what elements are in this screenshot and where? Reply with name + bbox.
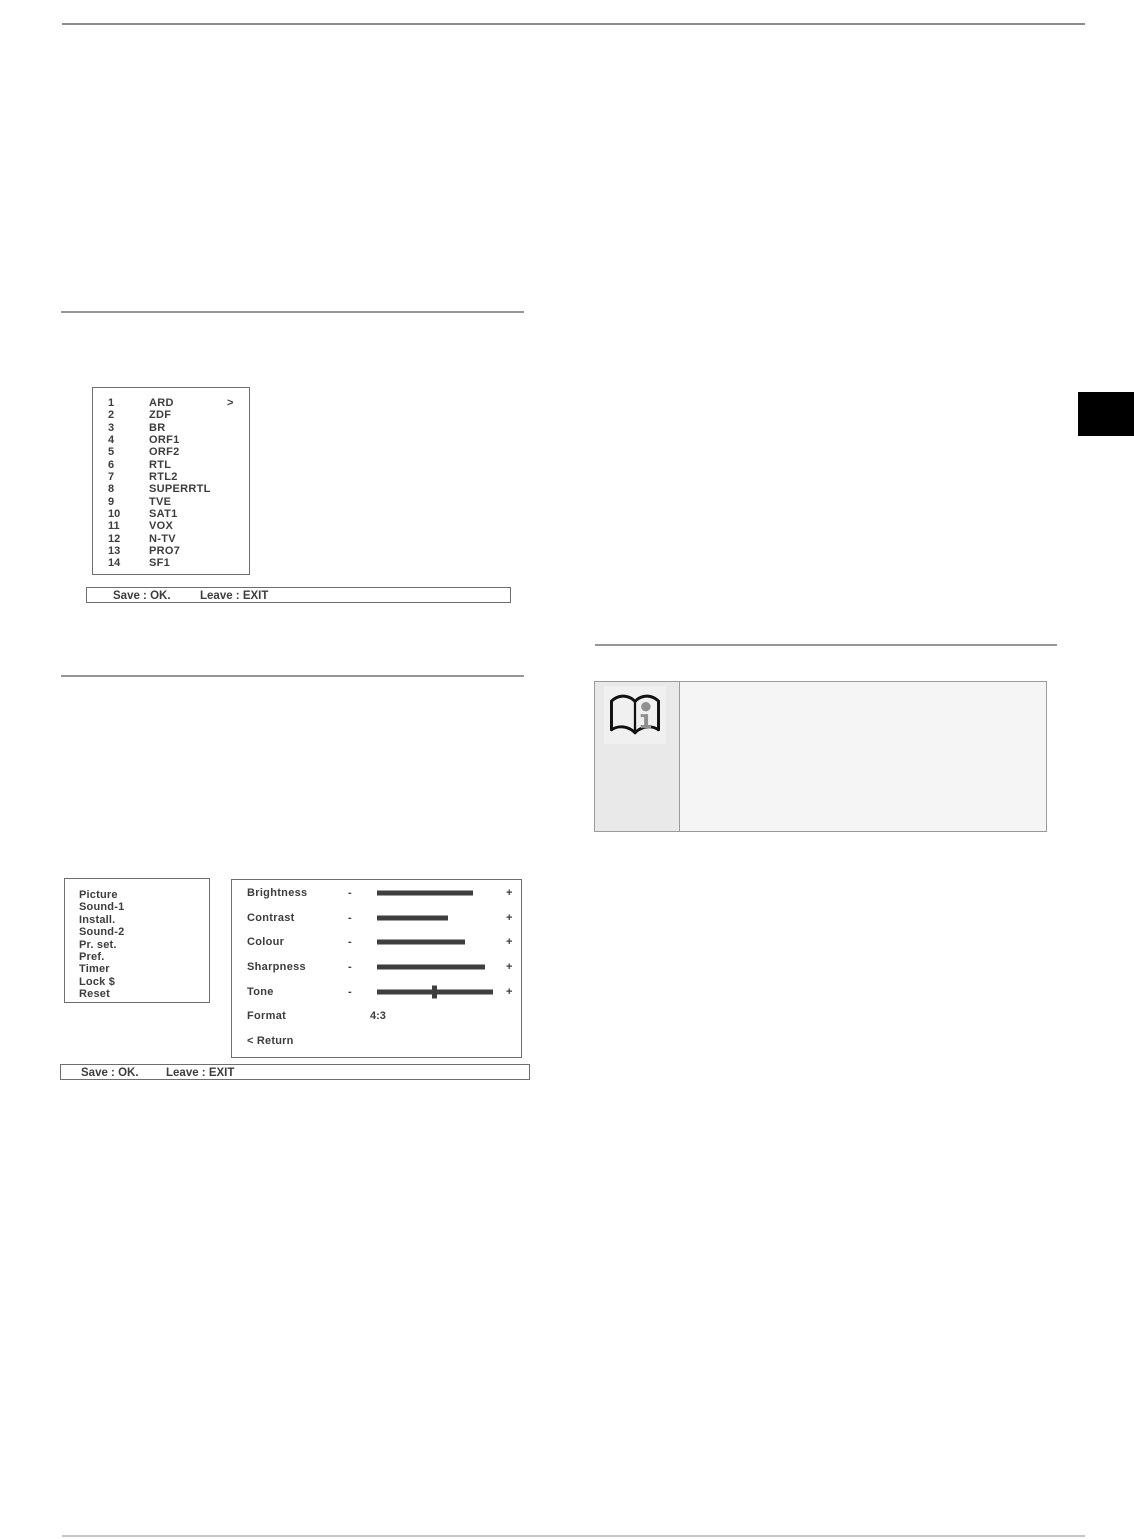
channel-name: SUPERRTL [149,483,211,495]
menu-item-install[interactable]: Install. [79,914,209,926]
channel-row[interactable]: 3BR [93,422,249,434]
menu-item-pr-set[interactable]: Pr. set. [79,939,209,951]
channel-name: RTL [149,459,171,471]
plus-label: + [506,986,512,998]
channel-name: RTL2 [149,471,178,483]
save-hint: Save : OK. [113,589,171,603]
channel-number: 11 [108,520,120,532]
channel-name: ARD [149,397,174,409]
slider-row: Sharpness-+ [232,955,521,980]
page-bottom-rule [62,1535,1085,1537]
channel-number: 13 [108,545,120,557]
minus-label: - [348,986,352,998]
channel-number: 6 [108,459,114,471]
menu-item-pref[interactable]: Pref. [79,951,209,963]
channel-row[interactable]: 5ORF2 [93,446,249,458]
channel-name: VOX [149,520,173,532]
minus-label: - [348,887,352,899]
plus-label: + [506,887,512,899]
format-row: Format 4:3 [232,1004,521,1029]
channel-row[interactable]: 11VOX [93,520,249,532]
channel-row[interactable]: 1ARD> [93,397,249,409]
slider-bar [377,965,485,970]
menu-item-picture[interactable]: Picture [79,889,209,901]
channel-number: 10 [108,508,120,520]
picture-settings-panel: Brightness-+Contrast-+Colour-+Sharpness-… [231,879,522,1058]
save-hint: Save : OK. [81,1066,139,1080]
channel-name: N-TV [149,533,176,545]
channel-row[interactable]: 8SUPERRTL [93,483,249,495]
section-divider [595,644,1057,646]
return-item[interactable]: < Return [247,1035,294,1047]
channel-name: ORF2 [149,446,180,458]
slider-handle[interactable] [432,985,437,998]
channel-list-menu: 1ARD>2ZDF3BR4ORF15ORF26RTL7RTL28SUPERRTL… [92,387,250,575]
section-divider [61,311,524,313]
channel-row[interactable]: 4ORF1 [93,434,249,446]
section-divider [61,675,524,677]
format-value[interactable]: 4:3 [370,1010,386,1022]
slider-label: Sharpness [247,961,306,973]
channel-number: 14 [108,557,120,569]
slider-label: Contrast [247,912,295,924]
slider-label: Brightness [247,887,307,899]
leave-hint: Leave : EXIT [200,589,268,603]
channel-row[interactable]: 6RTL [93,459,249,471]
slider-bar [377,940,465,945]
slider-label: Colour [247,936,284,948]
osd-footer-bar: Save : OK. Leave : EXIT [60,1064,530,1080]
minus-label: - [348,912,352,924]
channel-row[interactable]: 13PRO7 [93,545,249,557]
channel-name: TVE [149,496,171,508]
slider-row: Brightness-+ [232,881,521,906]
channel-name: SAT1 [149,508,178,520]
plus-label: + [506,961,512,973]
cursor-arrow-icon: > [227,397,233,409]
channel-name: ZDF [149,409,171,421]
channel-name: BR [149,422,166,434]
minus-label: - [348,961,352,973]
osd-footer-bar: Save : OK. Leave : EXIT [86,587,511,603]
tone-slider[interactable] [377,985,493,998]
return-row: < Return [232,1029,521,1054]
menu-item-lock[interactable]: Lock $ [79,976,209,988]
slider-label: Tone [247,986,274,998]
channel-row[interactable]: 14SF1 [93,557,249,569]
sharpness-slider[interactable] [377,961,493,974]
channel-number: 3 [108,422,114,434]
minus-label: - [348,936,352,948]
info-note-box [594,681,1047,832]
main-menu-list: PictureSound-1Install.Sound-2Pr. set.Pre… [64,878,210,1003]
slider-row: Tone-+ [232,979,521,1004]
channel-name: SF1 [149,557,170,569]
channel-row[interactable]: 7RTL2 [93,471,249,483]
contrast-slider[interactable] [377,911,493,924]
slider-row: Contrast-+ [232,906,521,931]
book-info-icon [604,686,666,744]
page-top-rule [62,23,1085,25]
leave-hint: Leave : EXIT [166,1066,234,1080]
channel-number: 8 [108,483,114,495]
page-edge-tab [1078,392,1134,436]
channel-name: ORF1 [149,434,180,446]
channel-number: 4 [108,434,114,446]
channel-number: 7 [108,471,114,483]
menu-item-timer[interactable]: Timer [79,963,209,975]
slider-bar [377,915,448,920]
plus-label: + [506,936,512,948]
menu-item-sound-2[interactable]: Sound-2 [79,926,209,938]
brightness-slider[interactable] [377,887,493,900]
channel-row[interactable]: 2ZDF [93,409,249,421]
menu-item-sound-1[interactable]: Sound-1 [79,901,209,913]
channel-number: 1 [108,397,114,409]
channel-number: 2 [108,409,114,421]
channel-number: 9 [108,496,114,508]
info-note-icon-cell [595,682,680,831]
colour-slider[interactable] [377,936,493,949]
channel-name: PRO7 [149,545,180,557]
channel-number: 5 [108,446,114,458]
channel-row[interactable]: 10SAT1 [93,508,249,520]
channel-number: 12 [108,533,120,545]
slider-bar [377,891,473,896]
format-label: Format [247,1010,286,1022]
channel-row[interactable]: 12N-TV [93,533,249,545]
plus-label: + [506,912,512,924]
channel-row[interactable]: 9TVE [93,496,249,508]
slider-row: Colour-+ [232,930,521,955]
menu-item-reset[interactable]: Reset [79,988,209,1000]
info-note-body [680,682,1046,831]
